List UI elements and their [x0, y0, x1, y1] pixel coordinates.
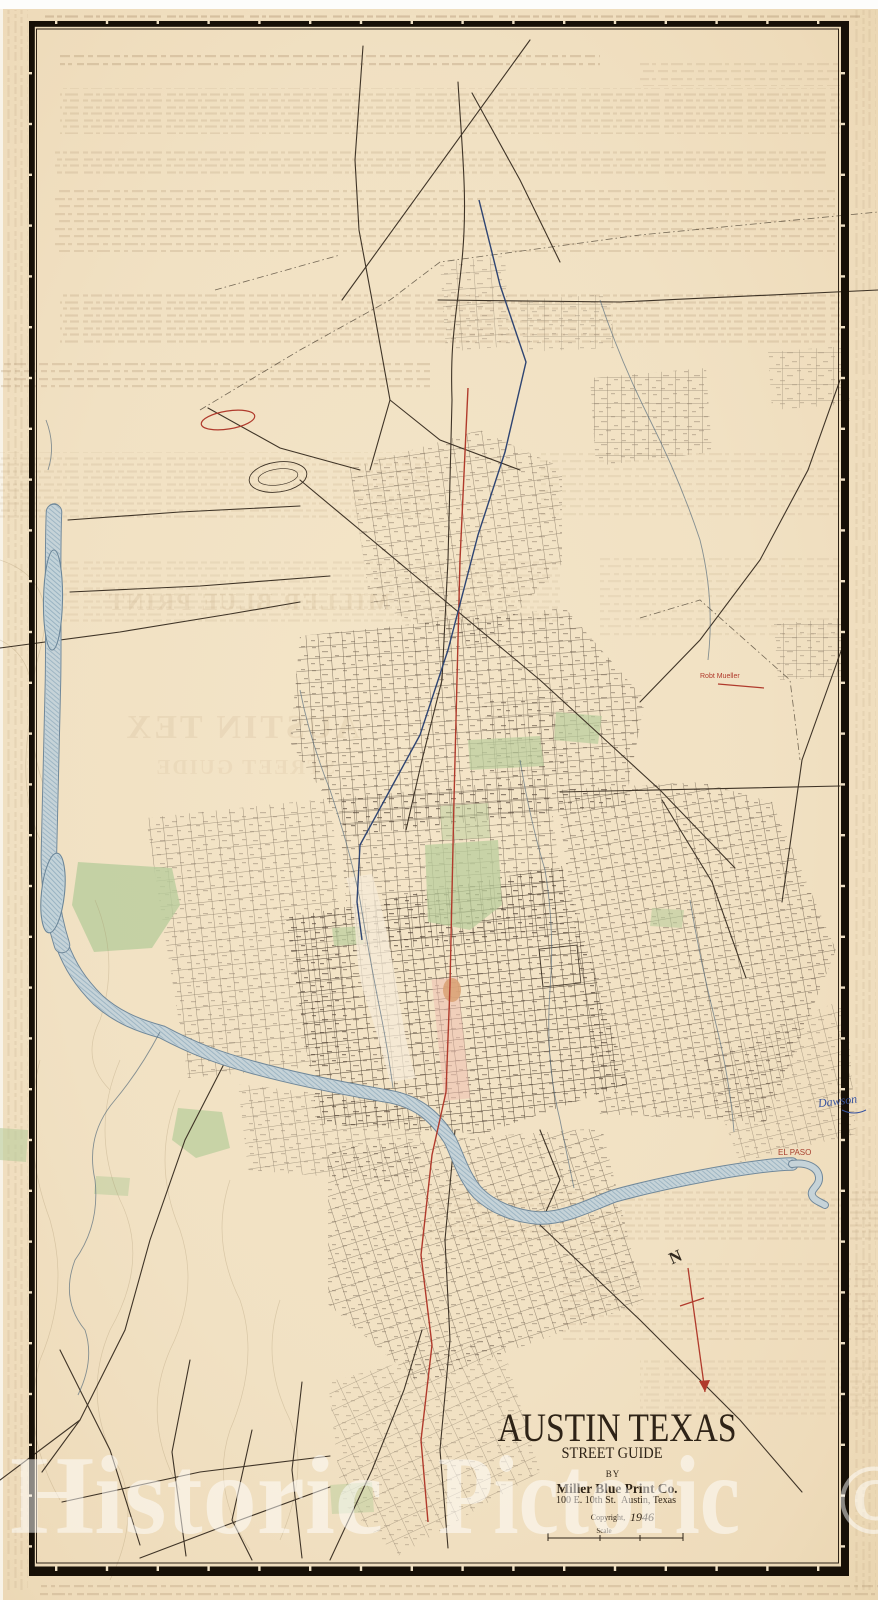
svg-text:EL PASO: EL PASO: [778, 1148, 811, 1157]
svg-text:Historic: Historic: [10, 1434, 383, 1558]
svg-text:MILLER BLUE PRINT: MILLER BLUE PRINT: [107, 590, 390, 616]
svg-text:©: ©: [836, 1444, 878, 1555]
svg-text:Robt Mueller: Robt Mueller: [700, 673, 740, 680]
svg-text:Pictoric: Pictoric: [438, 1434, 740, 1558]
